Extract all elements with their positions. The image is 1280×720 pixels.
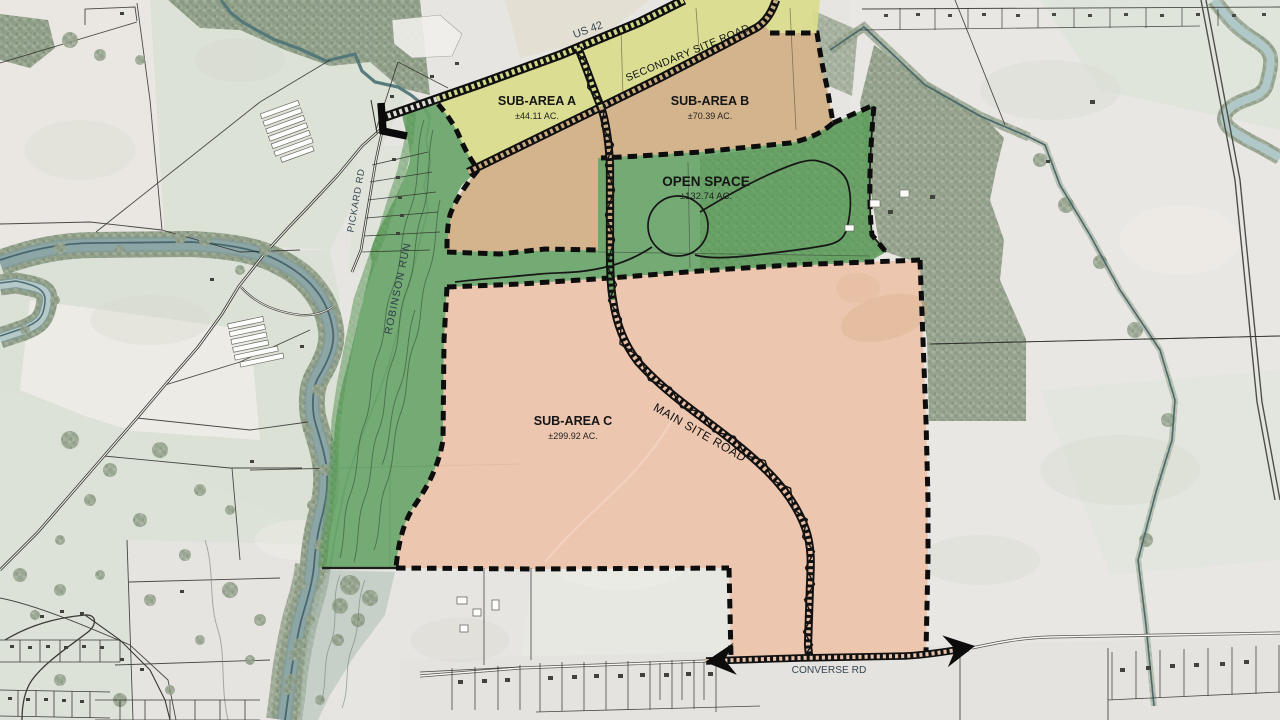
svg-text:±44.11 AC.: ±44.11 AC.	[515, 111, 559, 121]
svg-text:±299.92 AC.: ±299.92 AC.	[548, 431, 597, 441]
svg-text:SUB-AREA A: SUB-AREA A	[498, 94, 576, 108]
svg-text:SUB-AREA B: SUB-AREA B	[671, 94, 750, 108]
svg-text:CONVERSE RD: CONVERSE RD	[792, 665, 867, 676]
svg-text:±70.39 AC.: ±70.39 AC.	[688, 111, 732, 121]
svg-text:±132.74 AC.: ±132.74 AC.	[680, 191, 732, 202]
svg-text:SUB-AREA C: SUB-AREA C	[534, 414, 613, 428]
svg-text:OPEN SPACE: OPEN SPACE	[662, 174, 750, 189]
